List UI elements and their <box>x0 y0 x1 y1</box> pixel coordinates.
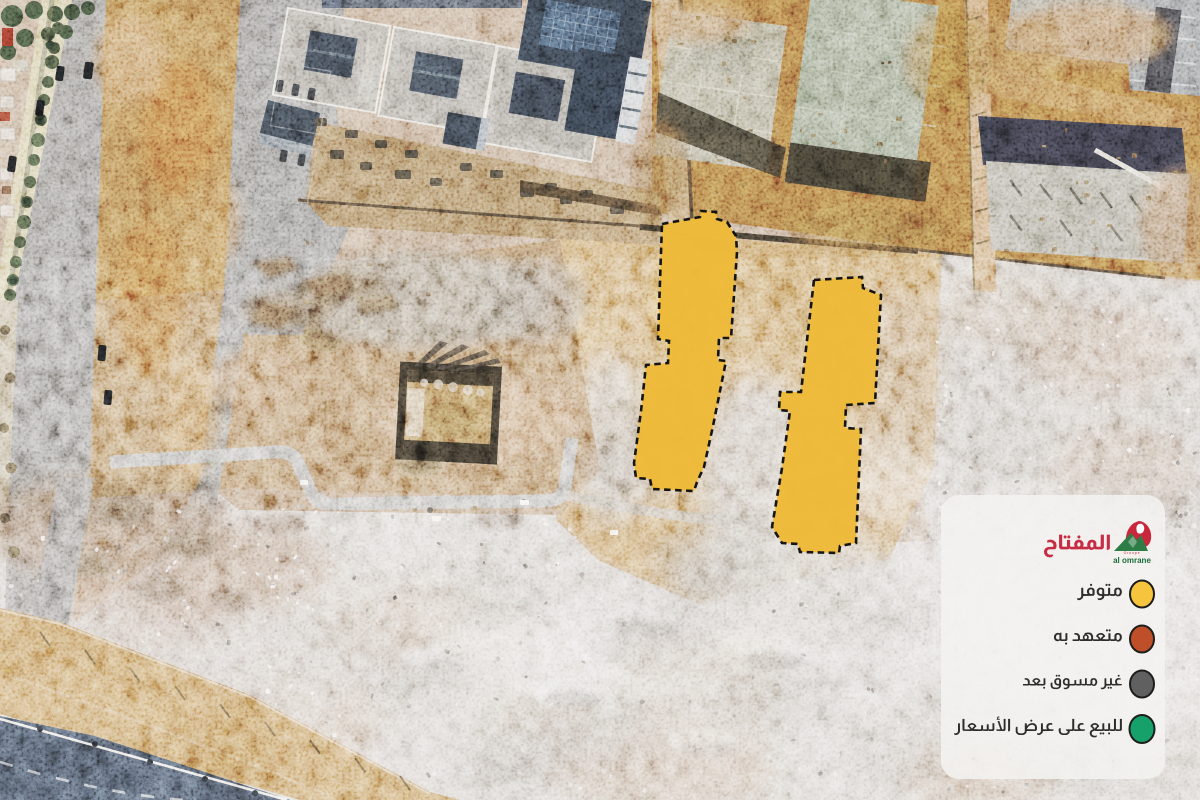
svg-text:Groupe: Groupe <box>1124 551 1141 555</box>
svg-text:al omrane: al omrane <box>1113 556 1151 565</box>
